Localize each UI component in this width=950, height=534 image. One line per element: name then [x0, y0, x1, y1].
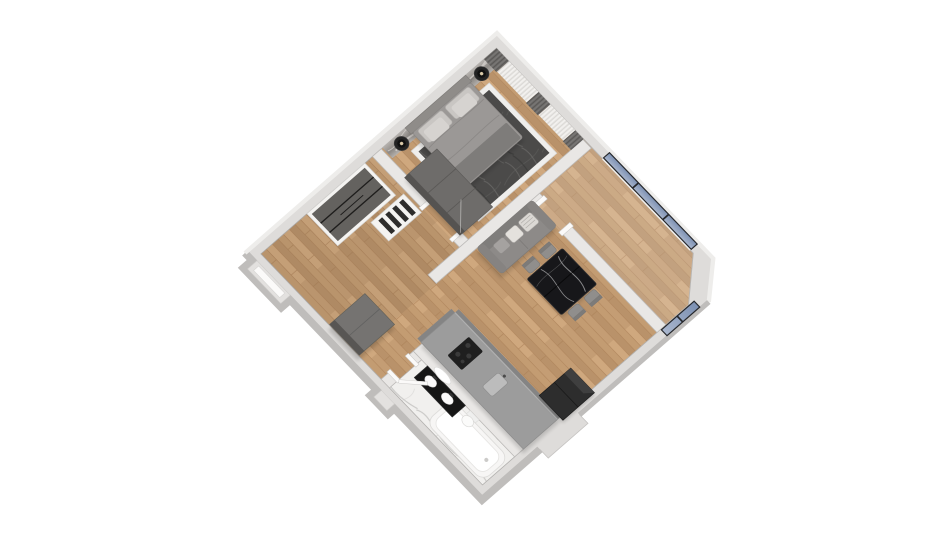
render-canvas [0, 0, 950, 534]
floorplan-3d-render [0, 0, 950, 534]
